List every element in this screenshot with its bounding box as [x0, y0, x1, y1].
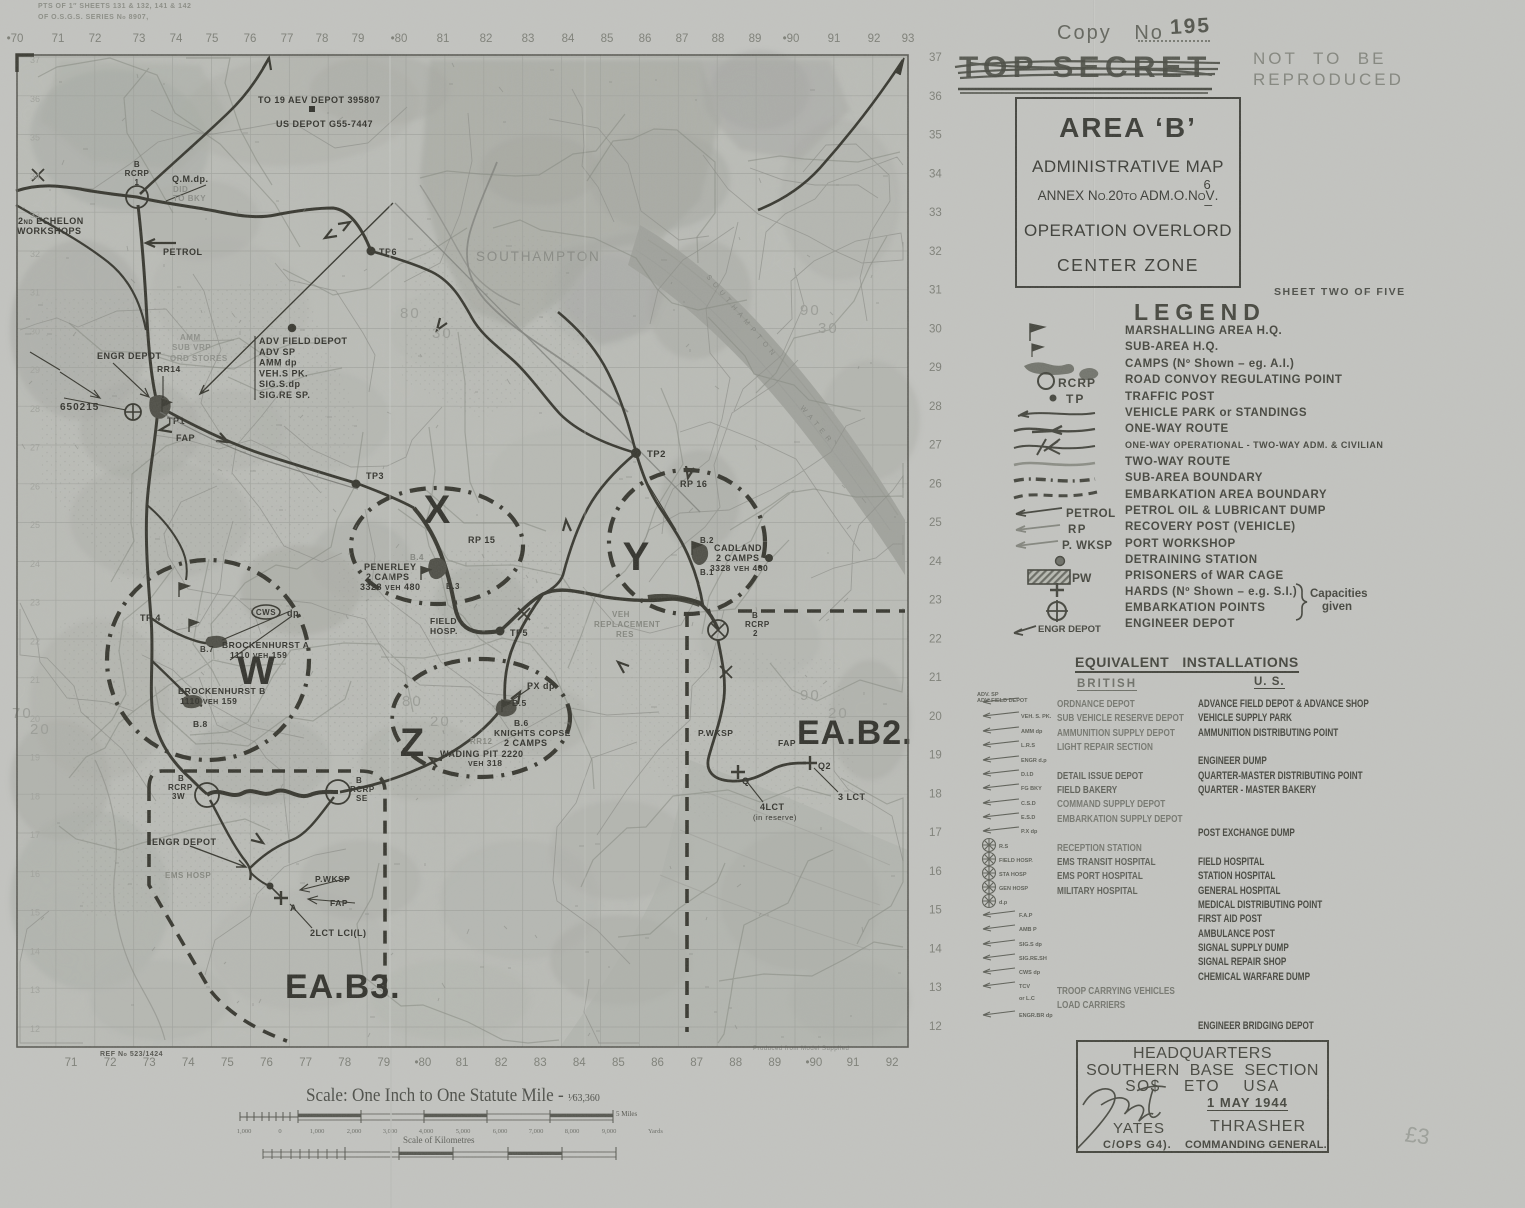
svg-text:81: 81 [437, 33, 450, 45]
svg-text:1: 1 [135, 178, 140, 187]
svg-text:2LCT LCI(L): 2LCT LCI(L) [310, 928, 367, 938]
svg-text:2,000: 2,000 [347, 1128, 362, 1135]
svg-text:Y: Y [623, 535, 650, 579]
svg-text:ENGR.BR dp: ENGR.BR dp [1019, 1013, 1053, 1019]
svg-text:35: 35 [929, 130, 942, 142]
svg-text:AMM dp: AMM dp [259, 358, 297, 368]
svg-text:75: 75 [206, 33, 219, 45]
svg-text:ORD STORES: ORD STORES [170, 354, 228, 363]
svg-text:EA.B3.: EA.B3. [285, 968, 401, 1006]
svg-text:L.R.S: L.R.S [1021, 743, 1035, 749]
svg-text:BROCKENHURST B: BROCKENHURST B [178, 686, 266, 696]
svg-text:20: 20 [828, 705, 849, 722]
svg-text:B: B [178, 774, 184, 783]
svg-text:5,000: 5,000 [456, 1128, 471, 1135]
svg-text:30: 30 [432, 325, 453, 342]
svg-text:Scale: One Inch to One Statut: Scale: One Inch to One Statute Mile - ¹⁄… [306, 1084, 600, 1105]
svg-text:83: 83 [534, 1057, 547, 1069]
svg-text:29: 29 [929, 362, 942, 374]
svg-text:F.A.P: F.A.P [1019, 913, 1033, 919]
svg-text:PETROL: PETROL [1066, 508, 1116, 520]
svg-text:27: 27 [30, 443, 40, 453]
svg-text:VEH 318: VEH 318 [468, 758, 502, 768]
svg-text:B: B [134, 160, 140, 169]
svg-text:20: 20 [929, 711, 942, 723]
svg-text:P.X dp: P.X dp [1021, 829, 1038, 835]
svg-text:19: 19 [929, 750, 942, 762]
svg-text:SIG.RE SP.: SIG.RE SP. [259, 390, 310, 400]
svg-text:34: 34 [929, 168, 942, 180]
svg-text:34: 34 [30, 171, 40, 181]
svg-text:•70: •70 [7, 33, 24, 45]
svg-text:3 LCT: 3 LCT [838, 792, 866, 802]
svg-text:TO BKY: TO BKY [173, 194, 206, 203]
svg-text:SUB VRP: SUB VRP [172, 343, 211, 352]
svg-text:PTS OF 1″ SHEETS 131 & 132, 14: PTS OF 1″ SHEETS 131 & 132, 141 & 142 [38, 3, 191, 10]
svg-text:27: 27 [929, 440, 942, 452]
svg-text:93: 93 [902, 33, 915, 45]
svg-text:13: 13 [30, 985, 40, 995]
svg-text:77: 77 [281, 33, 294, 45]
svg-text:B.8: B.8 [193, 719, 208, 729]
svg-text:AMB P: AMB P [1019, 927, 1037, 933]
svg-text:HOSP.: HOSP. [430, 626, 458, 636]
svg-text:75: 75 [221, 1057, 234, 1069]
svg-text:TP5: TP5 [510, 628, 528, 638]
svg-text:Q: Q [742, 776, 750, 786]
svg-text:1,000: 1,000 [237, 1128, 252, 1135]
svg-text:B.4: B.4 [410, 553, 424, 562]
svg-text:ENGR DEPOT: ENGR DEPOT [152, 837, 217, 847]
svg-text:21: 21 [30, 675, 40, 685]
svg-text:92: 92 [886, 1057, 899, 1069]
svg-text:17: 17 [929, 827, 942, 839]
svg-text:24: 24 [30, 559, 40, 569]
svg-text:EA.B2.: EA.B2. [797, 714, 913, 752]
svg-text:21: 21 [929, 672, 942, 684]
svg-text:SE: SE [356, 794, 368, 803]
svg-text:FIELD: FIELD [430, 616, 457, 626]
svg-text:15: 15 [929, 905, 942, 917]
svg-text:71: 71 [65, 1057, 78, 1069]
svg-text:18: 18 [30, 791, 40, 801]
svg-text:25: 25 [929, 517, 942, 529]
svg-text:29: 29 [30, 365, 40, 375]
svg-text:13: 13 [929, 982, 942, 994]
svg-text:REPLACEMENT: REPLACEMENT [594, 620, 660, 629]
svg-text:30: 30 [818, 320, 839, 337]
svg-text:E.S.D: E.S.D [1021, 815, 1035, 821]
svg-text:2: 2 [753, 629, 758, 638]
svg-text:P.WKSP: P.WKSP [698, 728, 733, 738]
svg-text:85: 85 [612, 1057, 625, 1069]
svg-text:Yards: Yards [648, 1128, 663, 1135]
svg-text:RR14: RR14 [157, 364, 181, 374]
svg-text:14: 14 [30, 946, 40, 956]
svg-text:•90: •90 [783, 33, 800, 45]
svg-text:US DEPOT G55-7447: US DEPOT G55-7447 [276, 119, 373, 129]
svg-text:CWS: CWS [256, 608, 276, 617]
svg-text:24: 24 [929, 556, 942, 568]
svg-text:17: 17 [30, 830, 40, 840]
svg-text:89: 89 [768, 1057, 781, 1069]
svg-text:1,000: 1,000 [310, 1128, 325, 1135]
svg-text:dp: dp [287, 608, 299, 618]
svg-text:B.7: B.7 [200, 645, 214, 654]
svg-text:•80: •80 [414, 1057, 431, 1069]
svg-text:4LCT: 4LCT [760, 802, 785, 812]
svg-text:72: 72 [89, 33, 102, 45]
svg-text:28: 28 [929, 401, 942, 413]
svg-text:77: 77 [299, 1057, 312, 1069]
svg-text:RP: RP [1068, 524, 1087, 536]
svg-text:1110 VEH 159: 1110 VEH 159 [180, 696, 237, 706]
svg-text:37: 37 [929, 52, 942, 64]
svg-text:84: 84 [562, 33, 575, 45]
svg-text:2 CAMPS: 2 CAMPS [504, 738, 548, 748]
svg-text:31: 31 [30, 288, 40, 298]
svg-text:ENGR d.p: ENGR d.p [1021, 758, 1047, 764]
svg-text:(in reserve): (in reserve) [753, 813, 797, 822]
svg-text:SIG.RE.SH: SIG.RE.SH [1019, 956, 1047, 962]
svg-text:73: 73 [133, 33, 146, 45]
svg-text:AMM dp: AMM dp [1021, 729, 1043, 735]
svg-text:TO 19 AEV DEPOT 395807: TO 19 AEV DEPOT 395807 [258, 95, 381, 105]
svg-text:P. WKSP: P. WKSP [1062, 540, 1113, 552]
svg-text:16: 16 [929, 866, 942, 878]
svg-text:71: 71 [52, 33, 65, 45]
svg-text:91: 91 [828, 33, 841, 45]
svg-text:82: 82 [495, 1057, 508, 1069]
svg-text:12: 12 [929, 1021, 942, 1033]
svg-text:TP: TP [1066, 392, 1085, 406]
svg-text:Q.M.dp.: Q.M.dp. [172, 174, 209, 184]
svg-text:RP 16: RP 16 [680, 479, 707, 489]
svg-text:74: 74 [182, 1057, 195, 1069]
svg-text:86: 86 [639, 33, 652, 45]
svg-text:ADV. FIELD DEPOT: ADV. FIELD DEPOT [977, 698, 1028, 704]
svg-text:76: 76 [244, 33, 257, 45]
svg-text:3328 VEH 480: 3328 VEH 480 [710, 563, 768, 573]
svg-text:36: 36 [929, 91, 942, 103]
svg-text:9,000: 9,000 [602, 1128, 617, 1135]
svg-text:FG BKY: FG BKY [1021, 786, 1042, 792]
svg-text:•80: •80 [391, 33, 408, 45]
svg-text:7,000: 7,000 [529, 1128, 544, 1135]
svg-text:19: 19 [30, 753, 40, 763]
svg-text:3W: 3W [172, 792, 185, 801]
svg-text:RCRP: RCRP [1058, 376, 1096, 390]
svg-text:82: 82 [480, 33, 493, 45]
svg-text:8,000: 8,000 [565, 1128, 580, 1135]
svg-text:18: 18 [929, 788, 942, 800]
svg-text:85: 85 [601, 33, 614, 45]
svg-text:650215: 650215 [60, 402, 99, 413]
svg-text:5 Miles: 5 Miles [616, 1110, 637, 1118]
svg-text:89: 89 [749, 33, 762, 45]
svg-text:A: A [290, 903, 297, 913]
svg-text:CWS dp: CWS dp [1019, 970, 1041, 976]
svg-text:TP3: TP3 [366, 471, 384, 481]
svg-text:90: 90 [800, 302, 821, 319]
svg-text:2 CAMPS: 2 CAMPS [366, 572, 410, 582]
svg-text:RES: RES [616, 630, 634, 639]
svg-text:79: 79 [377, 1057, 390, 1069]
svg-text:78: 78 [338, 1057, 351, 1069]
svg-text:RCRP: RCRP [125, 169, 150, 178]
svg-text:VEH. S. PK.: VEH. S. PK. [1021, 714, 1052, 720]
svg-text:16: 16 [30, 869, 40, 879]
svg-text:80: 80 [400, 305, 421, 322]
svg-text:28: 28 [30, 404, 40, 414]
svg-text:20: 20 [30, 714, 40, 724]
svg-text:RCRP: RCRP [745, 620, 770, 629]
svg-text:81: 81 [456, 1057, 469, 1069]
svg-text:31: 31 [929, 285, 942, 297]
svg-text:CADLAND: CADLAND [714, 543, 762, 553]
svg-text:84: 84 [573, 1057, 586, 1069]
svg-text:23: 23 [929, 595, 942, 607]
svg-text:TP 4: TP 4 [140, 613, 161, 623]
svg-text:RP 15: RP 15 [468, 535, 495, 545]
svg-text:ADV FIELD DEPOT: ADV FIELD DEPOT [259, 336, 348, 346]
svg-text:or L.C: or L.C [1019, 996, 1035, 1002]
svg-text:B.5: B.5 [512, 698, 527, 708]
svg-text:26: 26 [30, 481, 40, 491]
svg-text:72: 72 [104, 1057, 117, 1069]
svg-text:W A T E R: W A T E R [798, 405, 833, 444]
svg-text:92: 92 [868, 33, 881, 45]
svg-text:VEH: VEH [612, 610, 630, 619]
svg-text:WORKSHOPS: WORKSHOPS [17, 226, 82, 236]
svg-text:87: 87 [690, 1057, 703, 1069]
svg-text:30: 30 [30, 326, 40, 336]
svg-text:SIG.S.dp: SIG.S.dp [259, 379, 301, 389]
svg-text:SIG.S dp: SIG.S dp [1019, 942, 1043, 948]
svg-text:87: 87 [676, 33, 689, 45]
svg-text:15: 15 [30, 908, 40, 918]
svg-text:GEN HOSP: GEN HOSP [999, 886, 1028, 892]
svg-text:SOUTHAMPTON: SOUTHAMPTON [476, 249, 601, 264]
svg-text:B.3: B.3 [446, 582, 460, 591]
svg-text:OF O.S.G.S. SERIES No 8907,: OF O.S.G.S. SERIES No 8907, [38, 14, 149, 21]
svg-text:B.2: B.2 [700, 536, 714, 545]
svg-text:79: 79 [352, 33, 365, 45]
svg-text:83: 83 [522, 33, 535, 45]
svg-text:91: 91 [847, 1057, 860, 1069]
svg-text:2ND ECHELON: 2ND ECHELON [18, 216, 84, 226]
svg-text:74: 74 [170, 33, 183, 45]
svg-text:EMS HOSP: EMS HOSP [165, 871, 211, 880]
svg-text:B.6: B.6 [514, 718, 529, 728]
svg-text:TP6: TP6 [379, 247, 397, 257]
svg-text:RCRP: RCRP [168, 783, 193, 792]
svg-text:Z: Z [400, 721, 424, 765]
svg-text:ENGR DEPOT: ENGR DEPOT [1038, 624, 1101, 635]
svg-text:ENGR DEPOT: ENGR DEPOT [97, 351, 162, 361]
svg-text:KNIGHTS COPSE: KNIGHTS COPSE [494, 728, 571, 738]
svg-text:76: 76 [260, 1057, 273, 1069]
svg-text:AMM: AMM [180, 333, 201, 342]
svg-text:STA HOSP: STA HOSP [999, 872, 1027, 878]
svg-text:78: 78 [316, 33, 329, 45]
svg-text:12: 12 [30, 1024, 40, 1034]
svg-text:B: B [356, 776, 362, 785]
svg-text:33: 33 [30, 210, 40, 220]
svg-text:20: 20 [430, 713, 451, 730]
svg-text:d.p: d.p [999, 900, 1008, 906]
svg-text:BROCKENHURST A: BROCKENHURST A [222, 640, 309, 650]
svg-text:PETROL: PETROL [163, 247, 203, 257]
svg-text:B: B [752, 611, 758, 620]
svg-text:•90: •90 [805, 1057, 822, 1069]
svg-text:22: 22 [30, 636, 40, 646]
svg-text:D.I.D: D.I.D [1021, 772, 1034, 778]
svg-text:B.1: B.1 [700, 568, 714, 577]
svg-text:FAP: FAP [330, 898, 348, 908]
svg-text:25: 25 [30, 520, 40, 530]
svg-text:35: 35 [30, 133, 40, 143]
svg-text:Scale of Kilometres: Scale of Kilometres [403, 1135, 475, 1145]
svg-text:22: 22 [929, 633, 942, 645]
svg-text:32: 32 [30, 249, 40, 259]
svg-text:14: 14 [929, 943, 942, 955]
svg-text:RCRP: RCRP [350, 785, 375, 794]
svg-text:VEH.S PK.: VEH.S PK. [259, 368, 308, 378]
svg-text:6,000: 6,000 [493, 1128, 508, 1135]
svg-text:32: 32 [929, 246, 942, 258]
svg-text:RR12: RR12 [470, 737, 493, 746]
svg-text:23: 23 [30, 598, 40, 608]
svg-text:C.S.D: C.S.D [1021, 801, 1036, 807]
svg-text:FAP: FAP [176, 433, 195, 443]
svg-text:X: X [424, 488, 451, 532]
svg-text:PW: PW [1072, 571, 1092, 585]
svg-text:TCV: TCV [1019, 984, 1030, 990]
svg-text:TP2: TP2 [647, 449, 666, 460]
svg-text:88: 88 [729, 1057, 742, 1069]
svg-text:ADV SP: ADV SP [259, 347, 296, 357]
svg-text:80: 80 [402, 693, 423, 710]
svg-text:86: 86 [651, 1057, 664, 1069]
svg-text:REF No 523/1424: REF No 523/1424 [100, 1051, 163, 1058]
svg-text:36: 36 [30, 94, 40, 104]
svg-text:26: 26 [929, 478, 942, 490]
svg-text:R.S: R.S [999, 844, 1009, 850]
svg-text:4,000: 4,000 [419, 1128, 434, 1135]
svg-text:0: 0 [278, 1128, 281, 1135]
svg-text:30: 30 [929, 323, 942, 335]
svg-text:WADING PIT 2220: WADING PIT 2220 [440, 749, 524, 759]
svg-text:88: 88 [712, 33, 725, 45]
svg-text:33: 33 [929, 207, 942, 219]
svg-text:P.WKSP: P.WKSP [315, 874, 350, 884]
svg-text:FAP: FAP [778, 738, 796, 748]
svg-text:S O U T H A M P T O N: S O U T H A M P T O N [704, 274, 776, 358]
svg-text:DID: DID [173, 185, 188, 194]
svg-text:90: 90 [800, 687, 821, 704]
svg-text:2 CAMPS: 2 CAMPS [716, 553, 760, 563]
svg-text:Q2: Q2 [818, 761, 831, 771]
svg-text:73: 73 [143, 1057, 156, 1069]
svg-text:FIELD HOSP.: FIELD HOSP. [999, 858, 1033, 864]
svg-text:PX dp: PX dp [527, 681, 555, 691]
